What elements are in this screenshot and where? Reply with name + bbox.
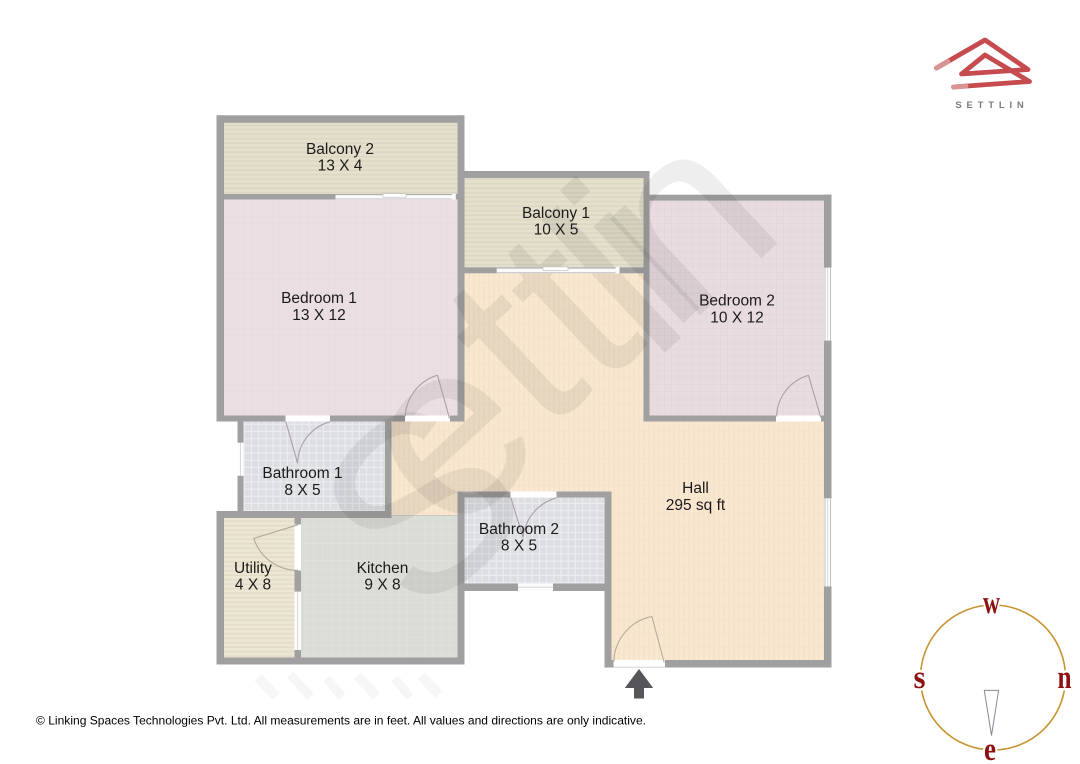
svg-text:Utility: Utility	[234, 560, 272, 577]
svg-text:Balcony 1: Balcony 1	[522, 205, 590, 222]
svg-text:© Linking Spaces Technologies: © Linking Spaces Technologies Pvt. Ltd. …	[36, 714, 646, 728]
svg-text:s: s	[914, 660, 926, 696]
svg-text:Hall: Hall	[682, 480, 709, 497]
svg-text:Bathroom 1: Bathroom 1	[262, 465, 342, 482]
svg-text:9 X 8: 9 X 8	[364, 577, 400, 594]
svg-text:w: w	[983, 585, 1000, 621]
svg-text:Bedroom 2: Bedroom 2	[699, 293, 775, 310]
svg-text:Kitchen: Kitchen	[357, 560, 409, 577]
svg-text:8 X 5: 8 X 5	[284, 482, 320, 499]
svg-text:10 X 5: 10 X 5	[534, 222, 579, 239]
svg-text:13 X 12: 13 X 12	[292, 307, 345, 324]
svg-text:10 X 12: 10 X 12	[710, 310, 763, 327]
svg-text:Balcony 2: Balcony 2	[306, 141, 374, 158]
svg-text:SETTLIN: SETTLIN	[955, 100, 1028, 111]
svg-text:Bathroom 2: Bathroom 2	[479, 521, 559, 538]
svg-text:13 X 4: 13 X 4	[318, 158, 363, 175]
svg-text:8 X 5: 8 X 5	[501, 538, 537, 555]
svg-text:4 X 8: 4 X 8	[235, 577, 271, 594]
svg-text:Bedroom 1: Bedroom 1	[281, 290, 357, 307]
svg-text:e: e	[984, 732, 996, 764]
svg-text:295 sq ft: 295 sq ft	[666, 497, 726, 514]
svg-text:n: n	[1058, 660, 1072, 696]
